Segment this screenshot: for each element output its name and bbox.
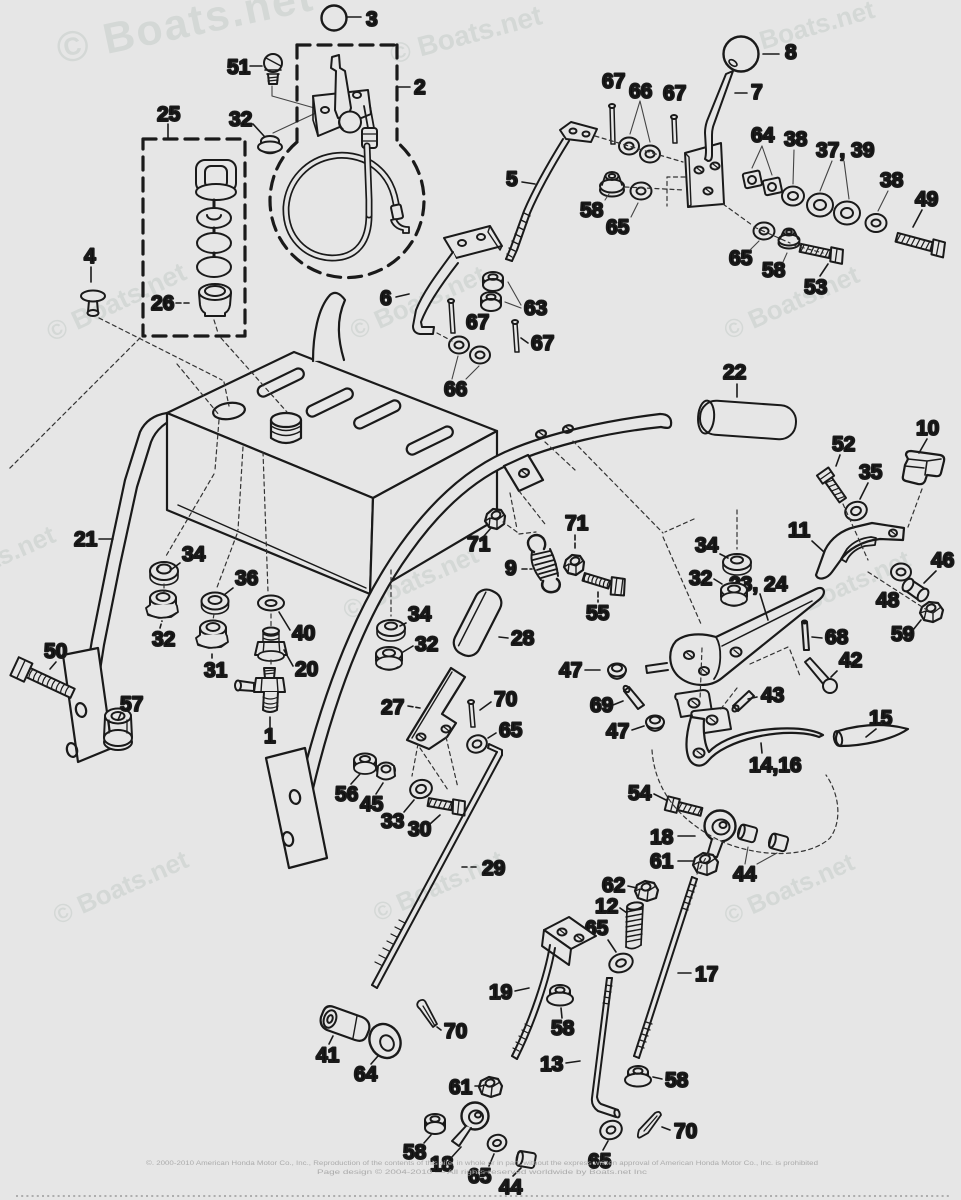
- svg-text:36: 36: [235, 567, 258, 590]
- svg-text:32: 32: [229, 108, 252, 131]
- svg-text:27: 27: [381, 696, 404, 719]
- svg-text:67: 67: [602, 70, 625, 93]
- svg-text:32: 32: [689, 567, 712, 590]
- svg-text:29: 29: [482, 857, 505, 880]
- svg-text:Page design © 2004-2010 — All: Page design © 2004-2010 — All rights res…: [317, 1168, 648, 1176]
- svg-text:70: 70: [444, 1020, 467, 1043]
- svg-text:32: 32: [415, 633, 438, 656]
- svg-text:66: 66: [629, 80, 652, 103]
- svg-text:47: 47: [606, 720, 629, 743]
- svg-text:40: 40: [292, 622, 315, 645]
- svg-text:22: 22: [723, 361, 746, 384]
- svg-text:66: 66: [444, 378, 467, 401]
- svg-text:65: 65: [729, 247, 753, 270]
- svg-text:25: 25: [157, 103, 181, 126]
- svg-text:50: 50: [44, 640, 67, 663]
- svg-text:19: 19: [489, 981, 512, 1004]
- svg-text:30: 30: [408, 818, 431, 841]
- svg-text:71: 71: [565, 512, 589, 535]
- svg-text:52: 52: [832, 433, 855, 456]
- svg-text:58: 58: [665, 1069, 689, 1092]
- svg-text:57: 57: [120, 693, 143, 716]
- svg-text:31: 31: [204, 659, 228, 682]
- svg-text:37, 39: 37, 39: [816, 139, 874, 162]
- svg-text:2: 2: [414, 76, 426, 99]
- svg-text:21: 21: [74, 528, 98, 551]
- svg-text:47: 47: [559, 659, 582, 682]
- svg-text:44: 44: [733, 863, 757, 886]
- svg-text:64: 64: [751, 124, 775, 147]
- svg-text:34: 34: [408, 603, 432, 626]
- svg-text:©. 2000-2010 American Honda Mo: ©. 2000-2010 American Honda Motor Co., I…: [146, 1159, 818, 1167]
- svg-text:67: 67: [466, 311, 489, 334]
- svg-text:58: 58: [762, 259, 786, 282]
- svg-text:34: 34: [182, 543, 206, 566]
- svg-text:54: 54: [628, 782, 652, 805]
- svg-text:8: 8: [785, 41, 797, 64]
- svg-text:4: 4: [84, 245, 96, 268]
- svg-text:18: 18: [650, 826, 674, 849]
- svg-text:17: 17: [695, 963, 718, 986]
- svg-text:49: 49: [915, 188, 938, 211]
- svg-text:10: 10: [916, 417, 939, 440]
- svg-text:32: 32: [152, 628, 175, 651]
- svg-text:6: 6: [380, 287, 392, 310]
- svg-text:20: 20: [295, 658, 318, 681]
- svg-text:9: 9: [505, 557, 517, 580]
- svg-text:69: 69: [590, 694, 613, 717]
- svg-text:12: 12: [595, 895, 618, 918]
- svg-text:41: 41: [316, 1044, 340, 1067]
- svg-text:26: 26: [151, 292, 174, 315]
- svg-text:63: 63: [524, 297, 547, 320]
- svg-text:56: 56: [335, 783, 358, 806]
- svg-text:35: 35: [859, 461, 883, 484]
- svg-text:46: 46: [931, 549, 954, 572]
- svg-text:5: 5: [506, 168, 518, 191]
- svg-text:62: 62: [602, 874, 625, 897]
- svg-text:28: 28: [511, 627, 535, 650]
- svg-text:71: 71: [467, 533, 491, 556]
- svg-text:67: 67: [663, 82, 686, 105]
- svg-text:70: 70: [674, 1120, 697, 1143]
- svg-text:11: 11: [788, 519, 811, 542]
- svg-text:58: 58: [551, 1017, 575, 1040]
- svg-text:70: 70: [494, 688, 517, 711]
- svg-text:3: 3: [366, 8, 378, 31]
- svg-text:51: 51: [227, 56, 251, 79]
- svg-text:61: 61: [650, 850, 674, 873]
- svg-text:38: 38: [880, 169, 904, 192]
- svg-text:65: 65: [499, 719, 523, 742]
- svg-text:15: 15: [869, 707, 893, 730]
- svg-text:55: 55: [586, 602, 610, 625]
- svg-text:1: 1: [264, 725, 276, 748]
- svg-text:59: 59: [891, 623, 914, 646]
- svg-text:33: 33: [381, 810, 404, 833]
- svg-text:65: 65: [606, 216, 630, 239]
- svg-text:53: 53: [804, 276, 827, 299]
- svg-text:68: 68: [825, 626, 849, 649]
- svg-text:64: 64: [354, 1063, 378, 1086]
- svg-text:38: 38: [784, 128, 808, 151]
- svg-text:34: 34: [695, 534, 719, 557]
- svg-text:7: 7: [751, 81, 763, 104]
- svg-text:61: 61: [449, 1076, 473, 1099]
- svg-text:58: 58: [580, 199, 604, 222]
- svg-text:13: 13: [540, 1053, 563, 1076]
- svg-text:14,16: 14,16: [749, 754, 802, 777]
- svg-text:42: 42: [839, 649, 862, 672]
- svg-text:43: 43: [761, 684, 784, 707]
- svg-text:48: 48: [876, 589, 900, 612]
- svg-text:67: 67: [531, 332, 554, 355]
